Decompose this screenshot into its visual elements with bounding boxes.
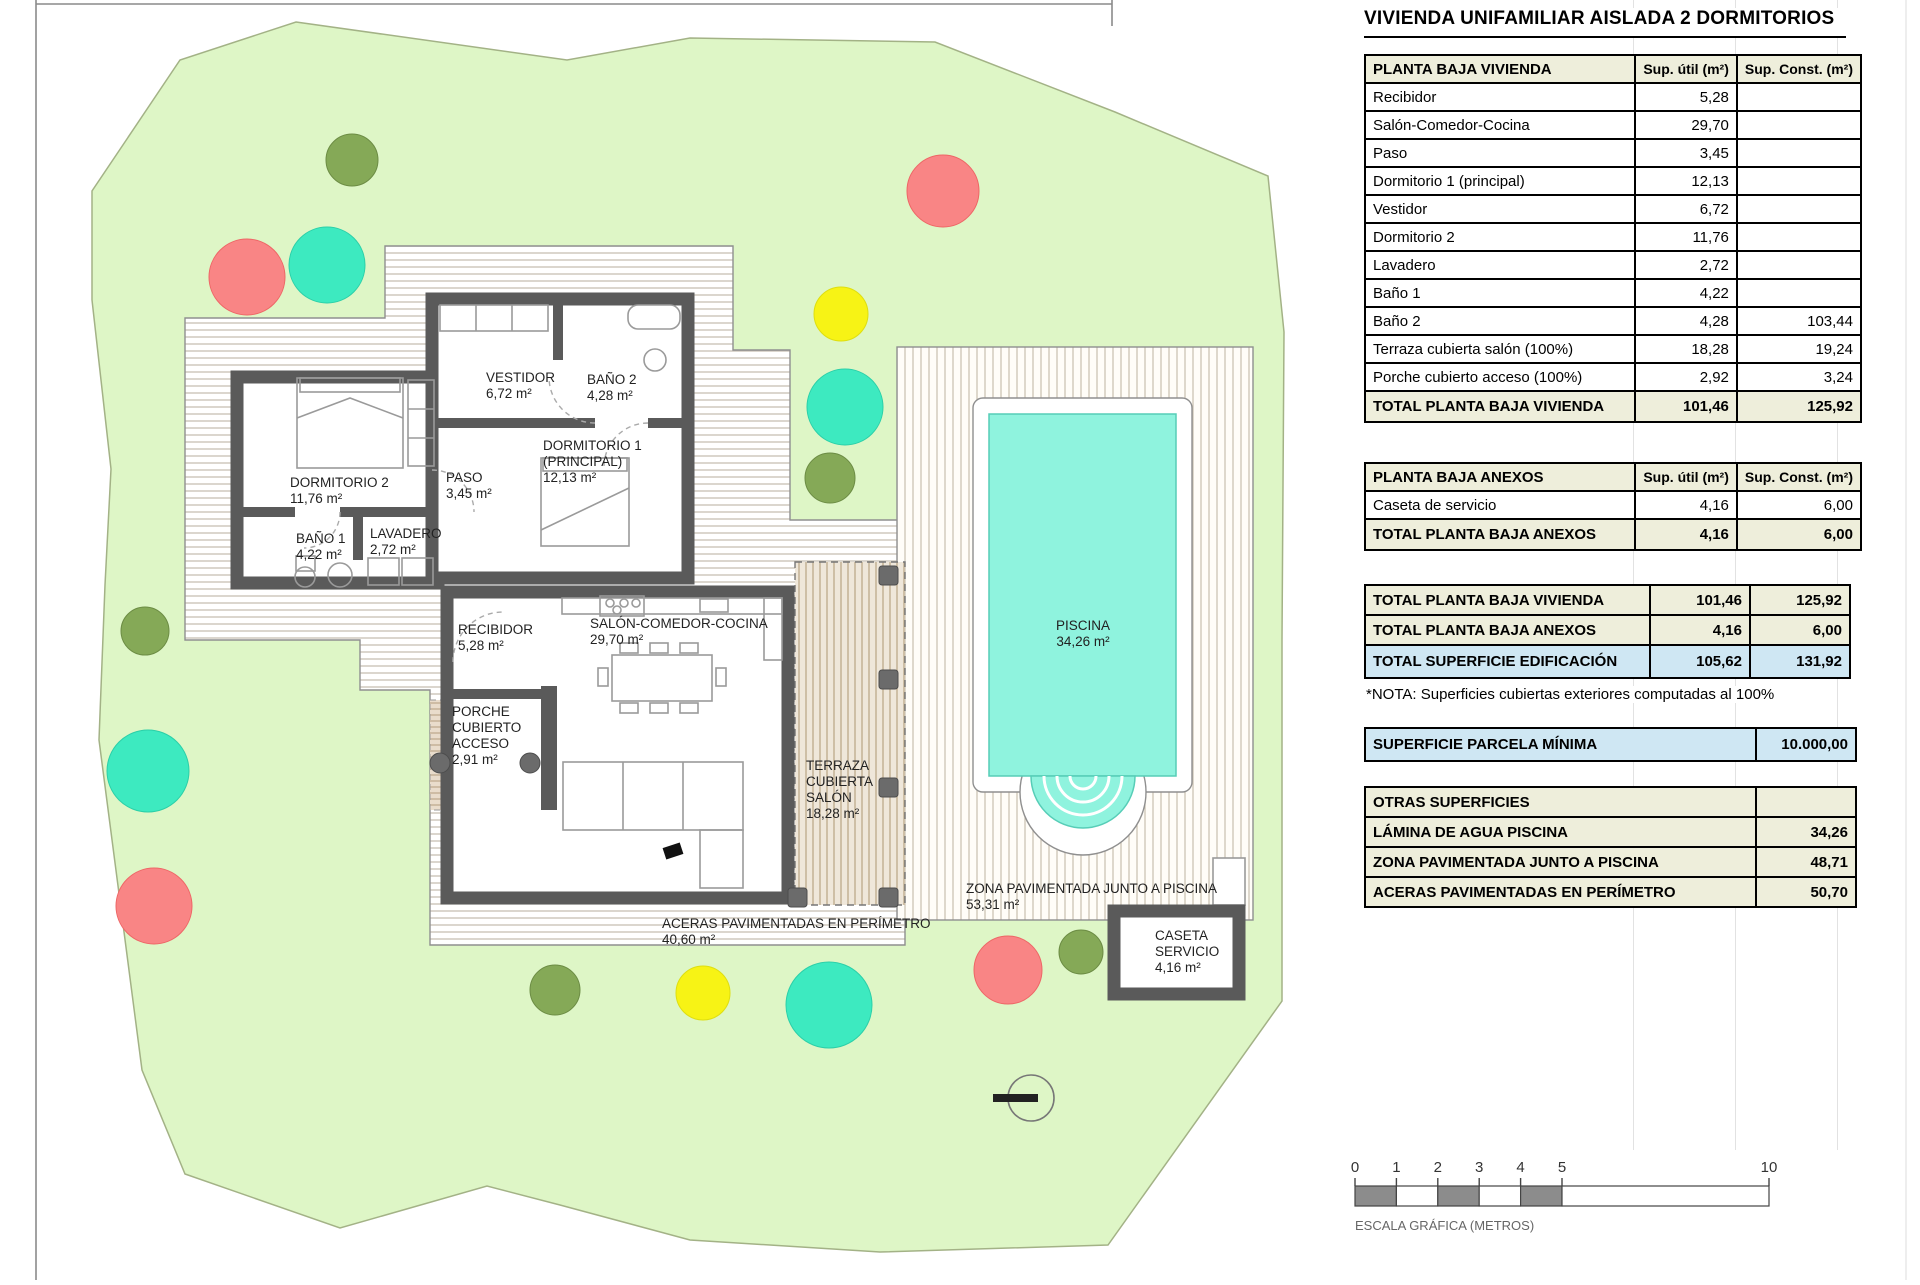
scale-bar-part: 5 (1558, 1159, 1566, 1176)
table-cell: Sup. útil (m²) (1635, 463, 1737, 491)
caseta-landing (1213, 858, 1245, 905)
table-cell: Sup. Const. (m²) (1737, 463, 1861, 491)
table-cell: 4,16 (1635, 491, 1737, 519)
table-cell: 3,24 (1737, 363, 1861, 391)
table-cell: Vestidor (1365, 195, 1635, 223)
table-row: ACERAS PAVIMENTADAS EN PERÍMETRO50,70 (1365, 877, 1856, 907)
table-cell: 18,28 (1635, 335, 1737, 363)
table-cell: 4,28 (1635, 307, 1737, 335)
table-row: Vestidor6,72 (1365, 195, 1861, 223)
table-row: TOTAL PLANTA BAJA VIVIENDA101,46125,92 (1365, 391, 1861, 422)
table-cell: 4,16 (1650, 615, 1750, 645)
table-cell: 6,00 (1750, 615, 1850, 645)
table-row: Paso3,45 (1365, 139, 1861, 167)
table-cell: 4,22 (1635, 279, 1737, 307)
table-cell: 12,13 (1635, 167, 1737, 195)
scale-bar-part (1479, 1186, 1520, 1206)
table-row: Recibidor5,28 (1365, 83, 1861, 111)
table-cell (1737, 111, 1861, 139)
table-cell: Paso (1365, 139, 1635, 167)
table-cell: 48,71 (1756, 847, 1856, 877)
table-cell: 4,16 (1635, 519, 1737, 550)
table-row: Dormitorio 211,76 (1365, 223, 1861, 251)
table-cell: 101,46 (1635, 391, 1737, 422)
table-cell: Sup. útil (m²) (1635, 55, 1737, 83)
scale-bar-part: 4 (1516, 1159, 1524, 1176)
table-cell: TOTAL PLANTA BAJA ANEXOS (1365, 615, 1650, 645)
table-cell (1737, 195, 1861, 223)
table-row: Caseta de servicio4,166,00 (1365, 491, 1861, 519)
table-cell: PLANTA BAJA VIVIENDA (1365, 55, 1635, 83)
table-cell: ZONA PAVIMENTADA JUNTO A PISCINA (1365, 847, 1756, 877)
table-cell: 11,76 (1635, 223, 1737, 251)
table-cell: PLANTA BAJA ANEXOS (1365, 463, 1635, 491)
table-row: TOTAL PLANTA BAJA ANEXOS4,166,00 (1365, 519, 1861, 550)
table-cell (1737, 279, 1861, 307)
table-row: LÁMINA DE AGUA PISCINA34,26 (1365, 817, 1856, 847)
scale-bar-part: 3 (1475, 1159, 1483, 1176)
table-cell (1756, 787, 1856, 817)
scale-bar-part: ESCALA GRÁFICA (METROS) (1355, 1218, 1534, 1233)
scale-bar-part: 10 (1761, 1159, 1778, 1176)
table-cell: TOTAL SUPERFICIE EDIFICACIÓN (1365, 645, 1650, 678)
table-cell (1737, 83, 1861, 111)
table-row: TOTAL PLANTA BAJA VIVIENDA101,46125,92 (1365, 585, 1850, 615)
scale-bar-part (1355, 1186, 1396, 1206)
table-cell: TOTAL PLANTA BAJA VIVIENDA (1365, 391, 1635, 422)
summary-panel: VIVIENDA UNIFAMILIAR AISLADA 2 DORMITORI… (1362, 0, 1862, 1150)
table-cell: 29,70 (1635, 111, 1737, 139)
table-cell: OTRAS SUPERFICIES (1365, 787, 1756, 817)
table-cell: Lavadero (1365, 251, 1635, 279)
table-cell: Dormitorio 2 (1365, 223, 1635, 251)
table-row: PLANTA BAJA VIVIENDASup. útil (m²)Sup. C… (1365, 55, 1861, 83)
table-cell: Recibidor (1365, 83, 1635, 111)
table-cell (1737, 139, 1861, 167)
scale-bar-part: 1 (1392, 1159, 1400, 1176)
table-row: TOTAL SUPERFICIE EDIFICACIÓN105,62131,92 (1365, 645, 1850, 678)
table-row: Terraza cubierta salón (100%)18,2819,24 (1365, 335, 1861, 363)
table-row: Porche cubierto acceso (100%)2,923,24 (1365, 363, 1861, 391)
table-row: ZONA PAVIMENTADA JUNTO A PISCINA48,71 (1365, 847, 1856, 877)
scale-bar-part: 0 (1351, 1159, 1359, 1176)
terraza-cubierta (795, 562, 905, 905)
table-row: TOTAL PLANTA BAJA ANEXOS4,166,00 (1365, 615, 1850, 645)
table-cell: 6,00 (1737, 491, 1861, 519)
table-cell: Terraza cubierta salón (100%) (1365, 335, 1635, 363)
table-cell: 6,72 (1635, 195, 1737, 223)
table-cell (1737, 223, 1861, 251)
table-cell: TOTAL PLANTA BAJA VIVIENDA (1365, 585, 1650, 615)
table-row: Salón-Comedor-Cocina29,70 (1365, 111, 1861, 139)
table-row: PLANTA BAJA ANEXOSSup. útil (m²)Sup. Con… (1365, 463, 1861, 491)
table-cell: Baño 1 (1365, 279, 1635, 307)
table-cell: 125,92 (1750, 585, 1850, 615)
table-cell: 19,24 (1737, 335, 1861, 363)
table-cell: SUPERFICIE PARCELA MÍNIMA (1365, 728, 1756, 761)
table-cell: 101,46 (1650, 585, 1750, 615)
page-title: VIVIENDA UNIFAMILIAR AISLADA 2 DORMITORI… (1364, 8, 1846, 38)
scale-bar-part (1521, 1186, 1562, 1206)
table-parcela-minima: SUPERFICIE PARCELA MÍNIMA10.000,00 (1364, 727, 1857, 762)
table-planta-baja-anexos: PLANTA BAJA ANEXOSSup. útil (m²)Sup. Con… (1364, 462, 1862, 551)
table-resumen-totales: TOTAL PLANTA BAJA VIVIENDA101,46125,92TO… (1364, 584, 1851, 679)
room-label-bano2: BAÑO 24,28 m² (587, 372, 637, 403)
table-cell: 103,44 (1737, 307, 1861, 335)
table-cell: 6,00 (1737, 519, 1861, 550)
table-row: Baño 14,22 (1365, 279, 1861, 307)
scale-bar-part: 2 (1434, 1159, 1442, 1176)
table-cell: 125,92 (1737, 391, 1861, 422)
table-planta-baja-vivienda: PLANTA BAJA VIVIENDASup. útil (m²)Sup. C… (1364, 54, 1862, 423)
scale-bar-part (1396, 1186, 1437, 1206)
table-row: Lavadero2,72 (1365, 251, 1861, 279)
table-cell: 2,72 (1635, 251, 1737, 279)
table-cell: 3,45 (1635, 139, 1737, 167)
table-cell (1737, 167, 1861, 195)
scale-bar: 01234510ESCALA GRÁFICA (METROS) (1351, 1159, 1778, 1233)
table-cell: 34,26 (1756, 817, 1856, 847)
table-cell: TOTAL PLANTA BAJA ANEXOS (1365, 519, 1635, 550)
table-cell: Baño 2 (1365, 307, 1635, 335)
table-cell: LÁMINA DE AGUA PISCINA (1365, 817, 1756, 847)
table-cell: 105,62 (1650, 645, 1750, 678)
table-cell: 10.000,00 (1756, 728, 1856, 761)
table-cell: Caseta de servicio (1365, 491, 1635, 519)
table-row: Baño 24,28103,44 (1365, 307, 1861, 335)
table-row: OTRAS SUPERFICIES (1365, 787, 1856, 817)
scale-bar-part (1562, 1186, 1769, 1206)
blueprint-canvas: DORMITORIO 211,76 m²PASO3,45 m²BAÑO 14,2… (0, 0, 1920, 1280)
table-cell (1737, 251, 1861, 279)
table-cell: Dormitorio 1 (principal) (1365, 167, 1635, 195)
table-otras-superficies: OTRAS SUPERFICIESLÁMINA DE AGUA PISCINA3… (1364, 786, 1857, 908)
table-cell: 5,28 (1635, 83, 1737, 111)
table-cell: Sup. Const. (m²) (1737, 55, 1861, 83)
table-cell: ACERAS PAVIMENTADAS EN PERÍMETRO (1365, 877, 1756, 907)
table-cell: Porche cubierto acceso (100%) (1365, 363, 1635, 391)
scale-bar-part (1438, 1186, 1479, 1206)
table-cell: 131,92 (1750, 645, 1850, 678)
room-label-piscina: PISCINA34,26 m² (1056, 618, 1110, 649)
table-row: Dormitorio 1 (principal)12,13 (1365, 167, 1861, 195)
table-cell: Salón-Comedor-Cocina (1365, 111, 1635, 139)
table-cell: 50,70 (1756, 877, 1856, 907)
table-row: SUPERFICIE PARCELA MÍNIMA10.000,00 (1365, 728, 1856, 761)
table-cell: 2,92 (1635, 363, 1737, 391)
nota-text: *NOTA: Superficies cubiertas exteriores … (1366, 686, 1774, 703)
room-label-bano1: BAÑO 14,22 m² (296, 531, 346, 562)
